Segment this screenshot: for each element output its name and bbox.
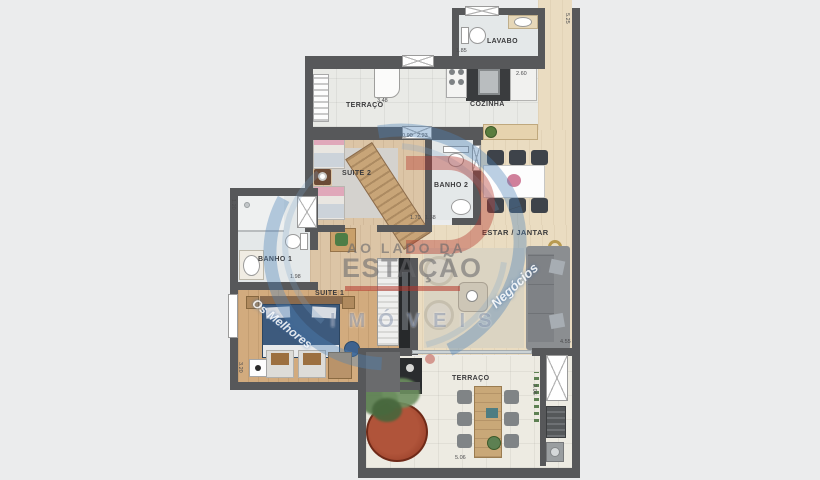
outdoor-chair xyxy=(457,434,472,448)
wall-segment xyxy=(572,348,580,478)
burner xyxy=(458,79,464,85)
banho2-sink xyxy=(451,199,471,215)
wall-segment xyxy=(358,348,366,478)
terrace-console-decor xyxy=(406,364,414,372)
suite1-cabinet xyxy=(328,352,352,379)
window xyxy=(297,196,317,228)
dimension-label: 2.23 xyxy=(417,133,428,139)
kitchen-sink xyxy=(478,69,500,95)
wall-segment xyxy=(572,8,580,355)
outdoor-chair xyxy=(504,412,519,426)
coffee-table-decor xyxy=(466,290,478,302)
dimension-label: 5.25 xyxy=(564,13,570,24)
room-label-suite2: SUITE 2 xyxy=(342,170,371,177)
suite2-bed-2-pillow xyxy=(314,187,344,196)
window xyxy=(465,6,499,16)
room-label-banho2: BANHO 2 xyxy=(434,182,468,189)
window xyxy=(546,355,568,401)
wall-segment xyxy=(358,468,580,478)
wall-segment xyxy=(425,140,432,225)
suite1-armchair-2-cushion xyxy=(303,353,321,365)
wall-segment xyxy=(538,8,545,62)
dining-chair xyxy=(487,150,504,165)
suite1-closet xyxy=(377,258,399,346)
suite1-headboard xyxy=(260,296,342,304)
suite1-nightstand-left xyxy=(246,296,259,309)
window xyxy=(228,294,238,338)
room-label-banho1: BANHO 1 xyxy=(258,256,292,263)
suite1-armchair-1-cushion xyxy=(271,353,289,365)
burner xyxy=(449,69,455,75)
suite2-side-table-lamp xyxy=(318,172,327,181)
plant-foliage xyxy=(372,398,402,422)
dining-chair xyxy=(509,150,526,165)
dimension-label: 3.20 xyxy=(237,362,243,373)
room-label-estar-jantar: ESTAR / JANTAR xyxy=(482,228,549,237)
room-label-suite1: SUITE 1 xyxy=(315,290,344,297)
dimension-label: 0.90 xyxy=(402,133,413,139)
suite2-bed-1-throw xyxy=(314,153,344,167)
dining-chair xyxy=(487,198,504,213)
lounge-pouf-2 xyxy=(424,300,454,330)
lavabo-toilet-tank xyxy=(461,27,469,44)
terrace-dresser xyxy=(374,65,400,98)
wall-segment xyxy=(377,225,432,232)
lounge-pouf-1 xyxy=(424,256,454,286)
dining-chair xyxy=(531,198,548,213)
outdoor-chair xyxy=(504,434,519,448)
suite1-pillow-left xyxy=(266,306,291,318)
dimension-label: 1.20 xyxy=(230,199,236,210)
banho1-toilet-bowl xyxy=(285,234,301,249)
suite1-pillow-right xyxy=(312,306,337,318)
room-label-cozinha: COZINHA xyxy=(470,101,505,108)
floor-plan: LAVABO TERRAÇO COZINHA SUITE 2 BANHO 2 E… xyxy=(0,0,820,480)
dimension-label: 3.48 xyxy=(377,98,388,104)
outdoor-chair xyxy=(457,412,472,426)
dimension-label: 1.85 xyxy=(456,48,467,54)
wall-segment xyxy=(230,282,318,290)
dimension-label: 5.06 xyxy=(455,455,466,461)
banho2-toilet-tank xyxy=(443,146,469,153)
outdoor-table-tray xyxy=(486,408,498,418)
outdoor-chair xyxy=(504,390,519,404)
dimension-label: 4.55 xyxy=(560,339,571,345)
banho1-toilet-tank xyxy=(300,233,308,250)
burner xyxy=(449,79,455,85)
dimension-label: 1.70 xyxy=(410,215,421,221)
window xyxy=(472,145,481,171)
outdoor-table-plant xyxy=(487,436,501,450)
window xyxy=(402,55,434,67)
wall-segment xyxy=(305,127,483,140)
banho1-shower-floor xyxy=(238,196,284,230)
banho1-shower-glass xyxy=(238,230,284,232)
wall-segment xyxy=(230,188,318,196)
sofa-pillow xyxy=(549,259,566,276)
wall-segment xyxy=(410,258,418,355)
room-label-terraco-bottom: TERRAÇO xyxy=(452,375,489,382)
outdoor-chair xyxy=(457,390,472,404)
dimension-label: 1.38 xyxy=(425,215,436,221)
dimension-label: 1.98 xyxy=(290,274,301,280)
suite1-nightstand-right xyxy=(342,296,355,309)
peninsula-plant xyxy=(485,126,497,138)
wall-block xyxy=(366,352,400,392)
corridor-desk-chair xyxy=(335,233,348,246)
wall-segment xyxy=(452,218,481,225)
dining-chair xyxy=(531,150,548,165)
suite1-floor-lamp-dot xyxy=(255,365,261,371)
sofa-pillow xyxy=(549,313,565,329)
suite2-bed-2-throw xyxy=(314,204,344,218)
dining-chair xyxy=(509,198,526,213)
dimension-label: 2.60 xyxy=(516,71,527,77)
sliding-door-glass xyxy=(412,350,532,354)
grill xyxy=(546,406,566,438)
lavabo-toilet-bowl xyxy=(469,27,486,44)
dimension-label: 2.06 xyxy=(531,384,537,395)
terrace-vine xyxy=(534,372,539,422)
banho2-toilet-bowl xyxy=(448,153,464,167)
terrace-sink-bowl xyxy=(550,447,560,457)
lavabo-sink xyxy=(514,17,532,27)
tv-screen xyxy=(402,272,408,330)
terrace-planter xyxy=(313,74,329,122)
banho1-shower-drain xyxy=(244,202,250,208)
room-label-lavabo: LAVABO xyxy=(487,38,518,45)
dining-centerpiece xyxy=(507,174,521,187)
burner xyxy=(458,69,464,75)
